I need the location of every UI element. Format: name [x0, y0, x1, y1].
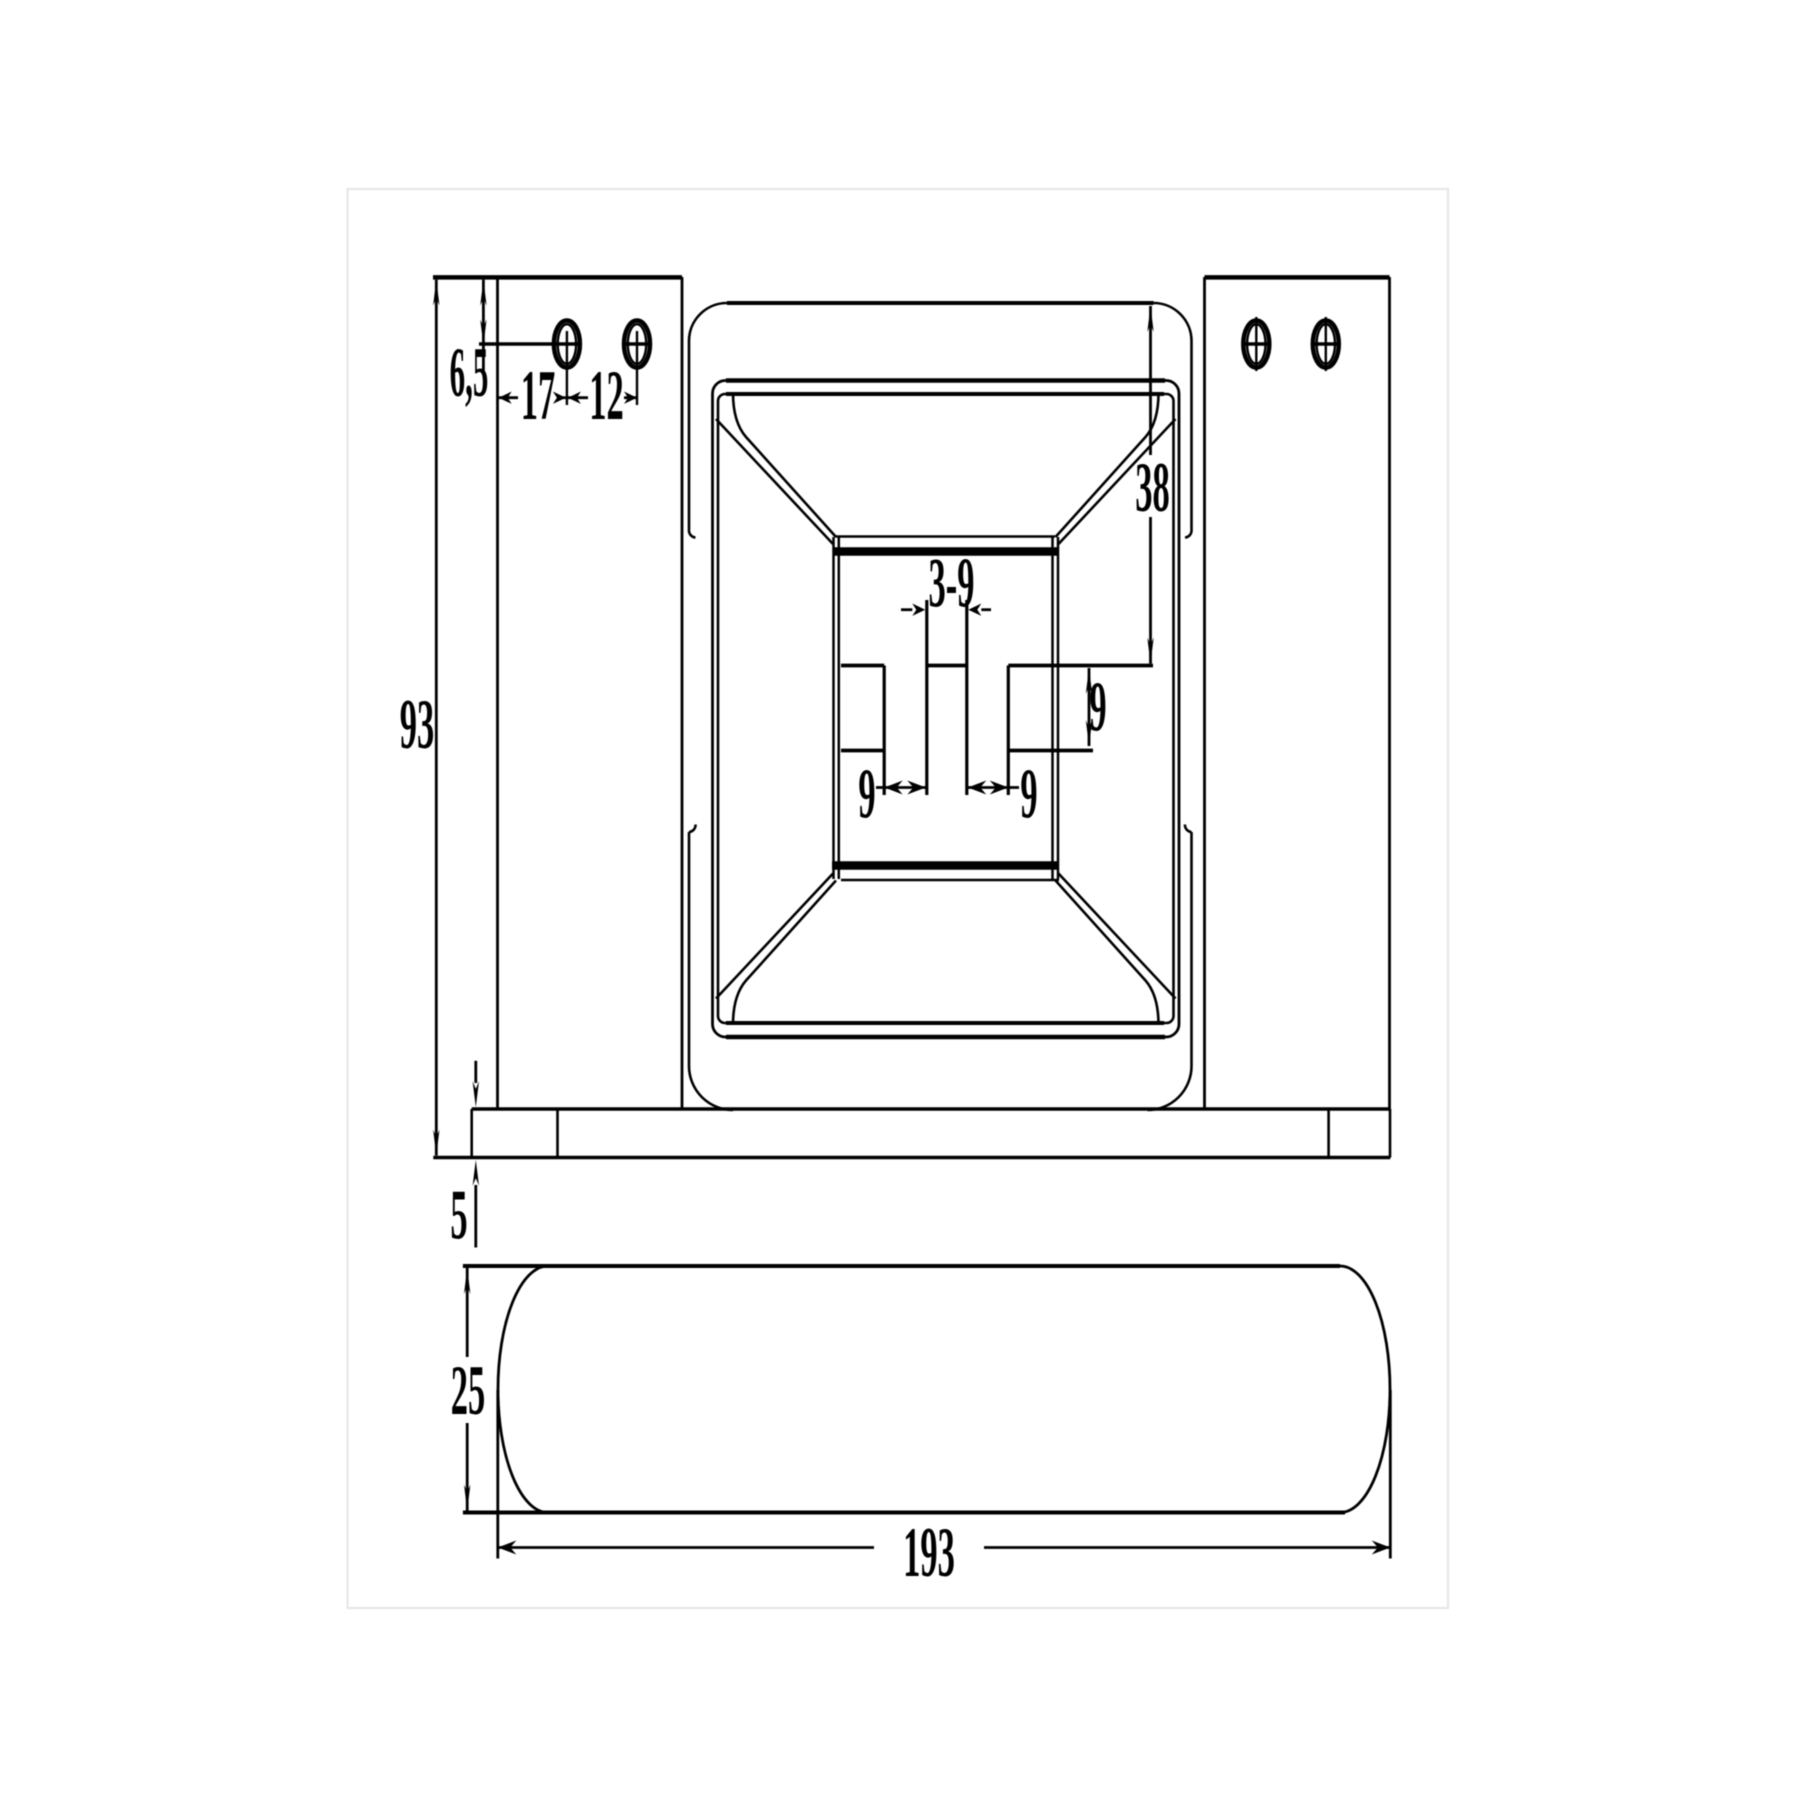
svg-text:6,5: 6,5 — [450, 333, 489, 412]
svg-text:25: 25 — [451, 1352, 485, 1431]
svg-text:9: 9 — [1020, 755, 1037, 834]
svg-text:93: 93 — [400, 686, 434, 765]
svg-text:9: 9 — [858, 755, 875, 834]
svg-text:12: 12 — [589, 357, 623, 436]
svg-text:3-9: 3-9 — [929, 544, 975, 623]
svg-text:9: 9 — [1089, 668, 1106, 747]
svg-text:38: 38 — [1135, 449, 1169, 528]
svg-text:17: 17 — [521, 357, 555, 436]
svg-text:5: 5 — [450, 1176, 467, 1255]
svg-text:193: 193 — [903, 1514, 955, 1593]
